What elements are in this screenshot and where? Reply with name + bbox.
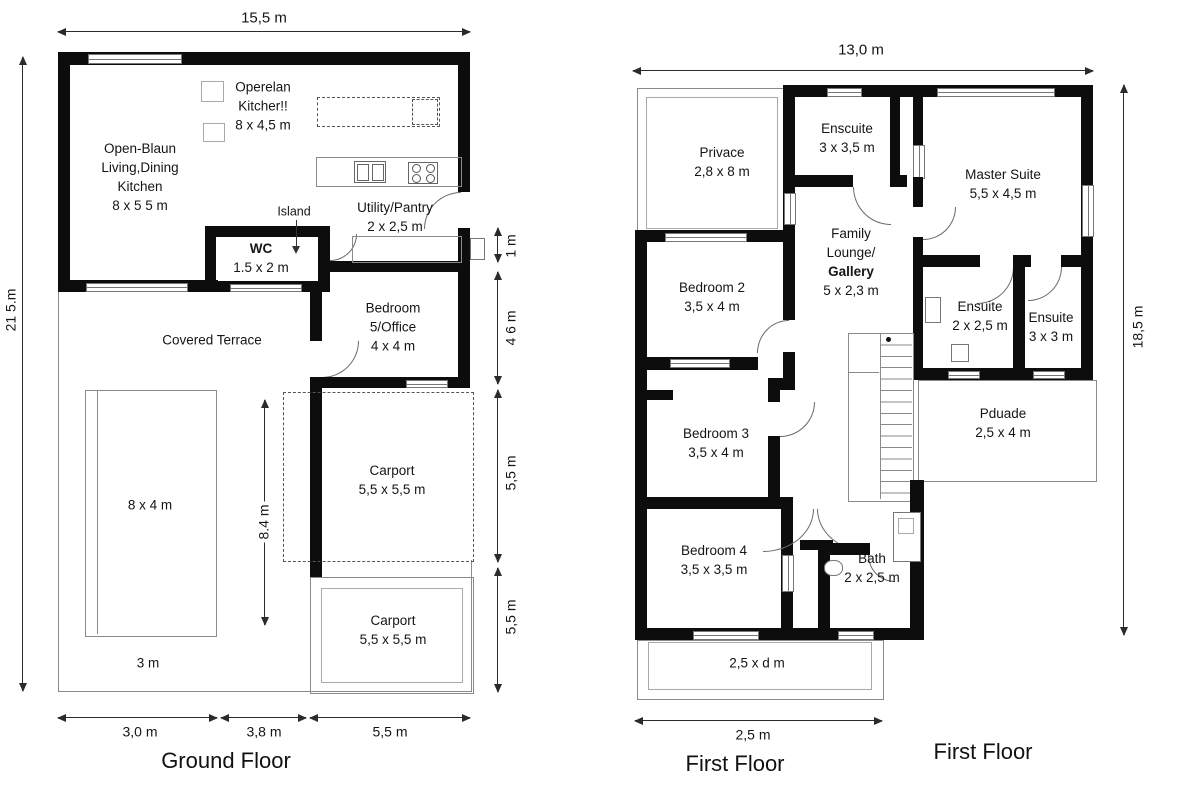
wall [58, 52, 70, 292]
floor-plan-canvas: 15,5 m 21 5.m Island Open-Blaun [0, 0, 1200, 800]
ground-dim-top-line [58, 31, 470, 32]
ground-dim-right1-label: 1 m [502, 234, 521, 257]
first-floor-title-2: First Floor [934, 739, 1033, 765]
room-label-bath: Bath 2 x 2,5 m [844, 549, 900, 587]
first-dim-top-label: 13,0 m [838, 41, 884, 60]
window [693, 631, 759, 640]
window [406, 380, 448, 388]
first-dim-top-line [633, 70, 1093, 71]
first-dim-bottom-line [635, 720, 882, 721]
room-label-bedroom4: Bedroom 4 3,5 x 3,5 m [681, 541, 748, 579]
window [838, 631, 874, 640]
wall [890, 85, 900, 187]
stair-treads [880, 334, 912, 499]
wall [310, 281, 322, 341]
window [230, 284, 302, 292]
balcony-size-label: 2,5 x d m [729, 654, 785, 673]
ground-dim-right3-line [497, 390, 498, 562]
room-label-carport2: Carport 5,5 x 5,5 m [360, 611, 427, 649]
room-label-utility: Utility/Pantry 2 x 2,5 m [357, 198, 433, 236]
ground-dim-bottom3-label: 5,5 m [372, 723, 407, 742]
legend-square [203, 123, 225, 142]
wall [768, 378, 795, 390]
window [470, 238, 485, 260]
wall [890, 175, 907, 187]
ground-dim-left-line [22, 57, 23, 691]
wall [1013, 255, 1031, 267]
room-label-ensuite2: Ensuite 3 x 3 m [1028, 308, 1073, 346]
island-detail-outline [412, 99, 438, 125]
shower-detail [898, 518, 914, 534]
room-label-family-lounge: Family Lounge/ Gallery 5 x 2,3 m [823, 224, 879, 300]
first-dim-right-label: 18,5 m [1129, 306, 1148, 349]
ground-dim-right4-line [497, 568, 498, 692]
ground-dim-bottom1-line [58, 717, 217, 718]
room-label-master: Master Suite 5,5 x 4,5 m [965, 165, 1041, 203]
stair-landing-line [849, 372, 879, 373]
room-label-bedroom2: Bedroom 2 3,5 x 4 m [679, 278, 745, 316]
room-label-wc: WC 1.5 x 2 m [233, 239, 289, 277]
ground-dim-top-label: 15,5 m [241, 9, 287, 28]
ground-dim-right2-label: 4 6 m [502, 310, 521, 345]
room-label-bedroom3: Bedroom 3 3,5 x 4 m [683, 424, 749, 462]
wall [205, 226, 330, 237]
ground-dim-bottom3-line [310, 717, 470, 718]
first-dim-right-line [1123, 85, 1124, 635]
room-label-enscuite: Enscuite 3 x 3,5 m [819, 119, 875, 157]
window [670, 359, 730, 368]
window [1082, 185, 1094, 237]
kitchen-note-label: Operelan Kitcher!! 8 x 4,5 m [235, 78, 291, 135]
wall [635, 497, 793, 509]
island-label: Island [277, 203, 310, 222]
pool-inner-line [97, 391, 98, 634]
window [665, 233, 747, 242]
ground-dim-right4-label: 5,5 m [502, 599, 521, 634]
wall [635, 390, 673, 400]
door-arc [780, 402, 815, 437]
pool-note-label: 3 m [137, 654, 160, 673]
wall [913, 93, 923, 145]
first-floor-title: First Floor [686, 751, 785, 777]
utility-bench [352, 236, 462, 263]
room-label-living: Open-Blaun Living,Dining Kitchen 8 x 5 5… [101, 139, 178, 215]
cooktop-icon [408, 162, 438, 184]
room-label-bedroom5: Bedroom 5/Office 4 x 4 m [366, 299, 421, 356]
wall [635, 230, 647, 640]
stair-start-dot [886, 337, 891, 342]
door-arc [853, 187, 891, 225]
window [913, 145, 925, 179]
island-arrow-line [296, 220, 297, 246]
ground-dim-left-label: 21 5.m [2, 289, 21, 332]
ground-dim-inner-label: 8.4 m [255, 501, 274, 542]
wall [1013, 267, 1025, 380]
wall [913, 368, 1093, 380]
door-arc [923, 207, 956, 240]
window [827, 88, 862, 97]
ground-dim-bottom2-label: 3,8 m [246, 723, 281, 742]
wall [783, 175, 853, 187]
ground-floor-title: Ground Floor [161, 748, 291, 774]
kitchen-sink [354, 161, 386, 183]
kitchen-counter [316, 157, 462, 187]
room-label-terrace: Covered Terrace [162, 331, 262, 350]
room-label-carport1: Carport 5,5 x 5,5 m [359, 461, 426, 499]
toilet-icon [925, 297, 941, 323]
ground-dim-right1-line [497, 228, 498, 262]
room-label-ensuite1: Ensuite 2 x 2,5 m [952, 297, 1008, 335]
wall [768, 390, 780, 402]
window [1033, 371, 1065, 379]
sink-icon [951, 344, 969, 362]
legend-square [201, 81, 224, 102]
first-dim-bottom-label: 2,5 m [735, 726, 770, 745]
door-arc [1028, 267, 1062, 301]
island-arrow-head [292, 246, 300, 254]
room-label-privace: Privace 2,8 x 8 m [694, 143, 750, 181]
pool-size-label: 8 x 4 m [128, 496, 172, 515]
terrace-boundary [58, 292, 59, 692]
window [937, 88, 1055, 97]
window [784, 193, 796, 225]
room-label-pduade: Pduade 2,5 x 4 m [975, 404, 1031, 442]
ground-dim-bottom1-label: 3,0 m [122, 723, 157, 742]
window [88, 54, 182, 64]
wall [818, 543, 830, 640]
wall [1061, 255, 1093, 267]
window [782, 555, 794, 592]
wall [913, 237, 923, 255]
ground-dim-right2-line [497, 272, 498, 384]
wall [913, 177, 923, 207]
door-arc [757, 320, 789, 353]
window [86, 283, 188, 292]
door-arc [322, 341, 359, 378]
window [948, 371, 980, 379]
toilet-icon [824, 560, 843, 576]
ground-dim-right3-label: 5,5 m [502, 455, 521, 490]
wall [913, 255, 980, 267]
wall [635, 628, 924, 640]
wall [913, 267, 923, 368]
ground-dim-bottom2-line [221, 717, 306, 718]
